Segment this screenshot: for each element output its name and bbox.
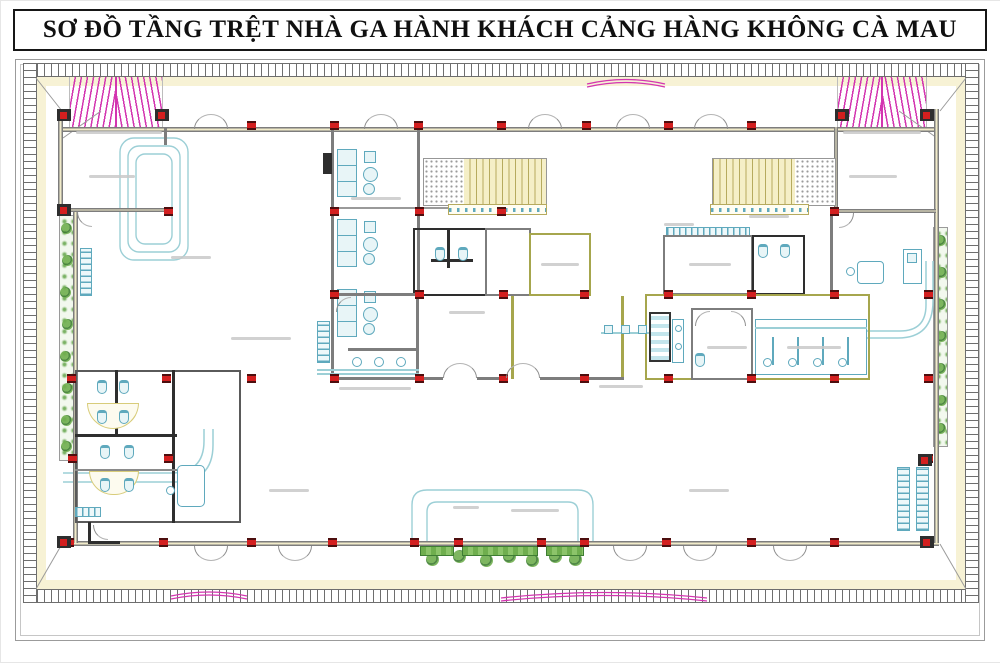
room-label (269, 489, 309, 492)
toilet-fixture (119, 410, 129, 424)
door-leaf-arc (506, 363, 523, 378)
agent-seat (813, 358, 822, 367)
room (485, 228, 531, 296)
corner-column (835, 109, 849, 121)
corner-column-core (158, 112, 165, 119)
column (454, 538, 463, 547)
baggage-claim-carousel (120, 138, 188, 260)
double-door (613, 546, 647, 561)
corner-column-core (923, 112, 930, 119)
column (159, 538, 168, 547)
column (747, 374, 756, 383)
double-door (694, 114, 728, 129)
door-leaf-arc (381, 114, 398, 129)
room-label (843, 131, 921, 134)
wall (416, 293, 419, 380)
seat-row (897, 467, 910, 531)
toilet-fixture (97, 380, 107, 394)
door-leaf-arc (460, 363, 477, 378)
counter-divider (797, 337, 799, 365)
toilet-fixture (124, 478, 134, 492)
door-leaf-arc (613, 546, 630, 561)
chair (363, 167, 378, 182)
corner-column (920, 536, 934, 548)
column (497, 121, 506, 130)
seat-row (80, 248, 92, 296)
corner-column-core (60, 539, 67, 546)
wall (88, 541, 120, 544)
column (924, 290, 933, 299)
wall (88, 522, 91, 543)
room-label (749, 215, 789, 218)
corner-column-core (60, 207, 67, 214)
column (415, 207, 424, 216)
wall (58, 208, 172, 212)
corner-column (920, 109, 934, 121)
toilet-fixture (97, 410, 107, 424)
toilet-fixture (458, 247, 468, 261)
column (924, 374, 933, 383)
toilet-fixture (758, 244, 768, 258)
column (662, 538, 671, 547)
column (330, 290, 339, 299)
room-label (76, 131, 162, 134)
wall (164, 127, 167, 145)
double-door (506, 363, 540, 378)
door-leaf-arc (364, 114, 381, 129)
floor-plan-sheet: SƠ ĐỒ TẦNG TRỆT NHÀ GA HÀNH KHÁCH CẢNG H… (0, 0, 1000, 663)
door-leaf-arc (194, 114, 211, 129)
wall (75, 434, 177, 437)
column (330, 207, 339, 216)
hedge (546, 546, 584, 556)
column (830, 538, 839, 547)
door-leaf-arc (790, 546, 807, 561)
corner-column (918, 454, 932, 466)
hedge (462, 546, 538, 556)
column (410, 538, 419, 547)
column (580, 374, 589, 383)
chair (364, 151, 376, 163)
room-label (449, 311, 485, 314)
column (664, 290, 673, 299)
counter-divider (847, 337, 849, 365)
corner-column (57, 109, 71, 121)
room-label (689, 263, 731, 266)
room-label (339, 387, 411, 390)
room-label (849, 175, 897, 178)
door-leaf-arc (545, 114, 562, 129)
wall (323, 153, 332, 174)
toilet-fixture (100, 478, 110, 492)
room-label (511, 509, 559, 512)
door-leaf-arc (773, 546, 790, 561)
door-leaf-arc (700, 546, 717, 561)
column (415, 374, 424, 383)
column (330, 374, 339, 383)
column (330, 121, 339, 130)
room-label (453, 506, 479, 509)
baggage-box (638, 325, 647, 334)
column (664, 121, 673, 130)
door-leaf-arc (711, 114, 728, 129)
wall (934, 109, 939, 543)
column (747, 121, 756, 130)
toilet-block-center (413, 228, 487, 296)
sofa (337, 289, 357, 337)
wall (334, 377, 443, 380)
column (582, 121, 591, 130)
toilet-fixture (695, 353, 705, 367)
corner-column-core (921, 457, 928, 464)
column (328, 538, 337, 547)
column (664, 374, 673, 383)
counter-belt (755, 327, 867, 329)
toilet-fixture (780, 244, 790, 258)
counter-divider (822, 337, 824, 365)
toilet-fixture (100, 445, 110, 459)
chair (363, 323, 375, 335)
column (247, 374, 256, 383)
door-leaf-arc (694, 114, 711, 129)
double-door (683, 546, 717, 561)
room-label (541, 263, 579, 266)
agent-seat (352, 357, 362, 367)
column (747, 290, 756, 299)
door-leaf-arc (523, 363, 540, 378)
column (67, 374, 76, 383)
wall (172, 370, 175, 523)
desk (177, 465, 205, 507)
double-door (194, 114, 228, 129)
column (162, 374, 171, 383)
door-leaf-arc (633, 114, 650, 129)
tray (675, 325, 682, 332)
chair (363, 307, 378, 322)
door-leaf-arc (616, 114, 633, 129)
counter-divider (772, 337, 774, 365)
column (537, 538, 546, 547)
room-label (787, 346, 841, 349)
agent-seat (374, 357, 384, 367)
door-leaf-arc (683, 546, 700, 561)
agent-seat (788, 358, 797, 367)
column (415, 290, 424, 299)
agent-seat (838, 358, 847, 367)
room-label (351, 197, 401, 200)
chair (364, 221, 376, 233)
stair-landing-right (710, 204, 809, 215)
column (499, 290, 508, 299)
toilet-fixture (435, 247, 445, 261)
desk (857, 261, 884, 284)
column (580, 538, 589, 547)
column (247, 538, 256, 547)
column (247, 121, 256, 130)
double-door (616, 114, 650, 129)
dropoff-loop (412, 490, 593, 544)
double-door (773, 546, 807, 561)
column (68, 454, 77, 463)
tray-stack (317, 321, 330, 363)
chair (846, 267, 855, 276)
bench (75, 507, 101, 517)
door-leaf-arc (211, 546, 228, 561)
agent-seat (763, 358, 772, 367)
room-label (171, 256, 211, 259)
corner-column (155, 109, 169, 121)
door-leaf-arc (630, 546, 647, 561)
corner-column-core (838, 112, 845, 119)
double-door (194, 546, 228, 561)
door-leaf-arc (278, 546, 295, 561)
hedge (420, 546, 454, 556)
kiosk-screen (907, 253, 917, 263)
corner-column (57, 204, 71, 216)
corner-column-core (923, 539, 930, 546)
column (830, 374, 839, 383)
double-door (443, 363, 477, 378)
toilet-fixture (119, 380, 129, 394)
door-leaf-arc (295, 546, 312, 561)
wall (348, 348, 418, 351)
door-leaf-arc (443, 363, 460, 378)
column (830, 207, 839, 216)
door-leaf-arc (194, 546, 211, 561)
counter-belt (317, 369, 419, 371)
double-door (278, 546, 312, 561)
column (830, 290, 839, 299)
wall (331, 293, 334, 380)
wall (331, 293, 419, 296)
corner-column-core (60, 112, 67, 119)
room-label (89, 175, 135, 178)
sofa (337, 219, 357, 267)
toilet-fixture (124, 445, 134, 459)
chair (166, 486, 175, 495)
xray-scanner (649, 312, 671, 362)
column (164, 454, 173, 463)
baggage-box (604, 325, 613, 334)
agent-seat (396, 357, 406, 367)
corner-column (57, 536, 71, 548)
stair-hatch-right (795, 159, 835, 205)
column (497, 207, 506, 216)
column (414, 121, 423, 130)
door-leaf-arc (211, 114, 228, 129)
chair (363, 237, 378, 252)
room-label (664, 223, 694, 226)
column (747, 538, 756, 547)
room-label (689, 489, 729, 492)
sofa (337, 149, 357, 197)
double-door (364, 114, 398, 129)
wall (621, 296, 624, 379)
room-label (231, 337, 291, 340)
chair (363, 253, 375, 265)
double-door (528, 114, 562, 129)
room-label (707, 346, 747, 349)
baggage-box (621, 325, 630, 334)
chair (363, 183, 375, 195)
door-leaf-arc (528, 114, 545, 129)
room-label (599, 385, 643, 388)
column (164, 207, 173, 216)
wall (447, 230, 450, 268)
column (580, 290, 589, 299)
wall (58, 109, 63, 213)
wall (830, 209, 833, 297)
stair-hatch-left (424, 159, 464, 205)
tray (675, 343, 682, 350)
seat-row (916, 467, 929, 531)
